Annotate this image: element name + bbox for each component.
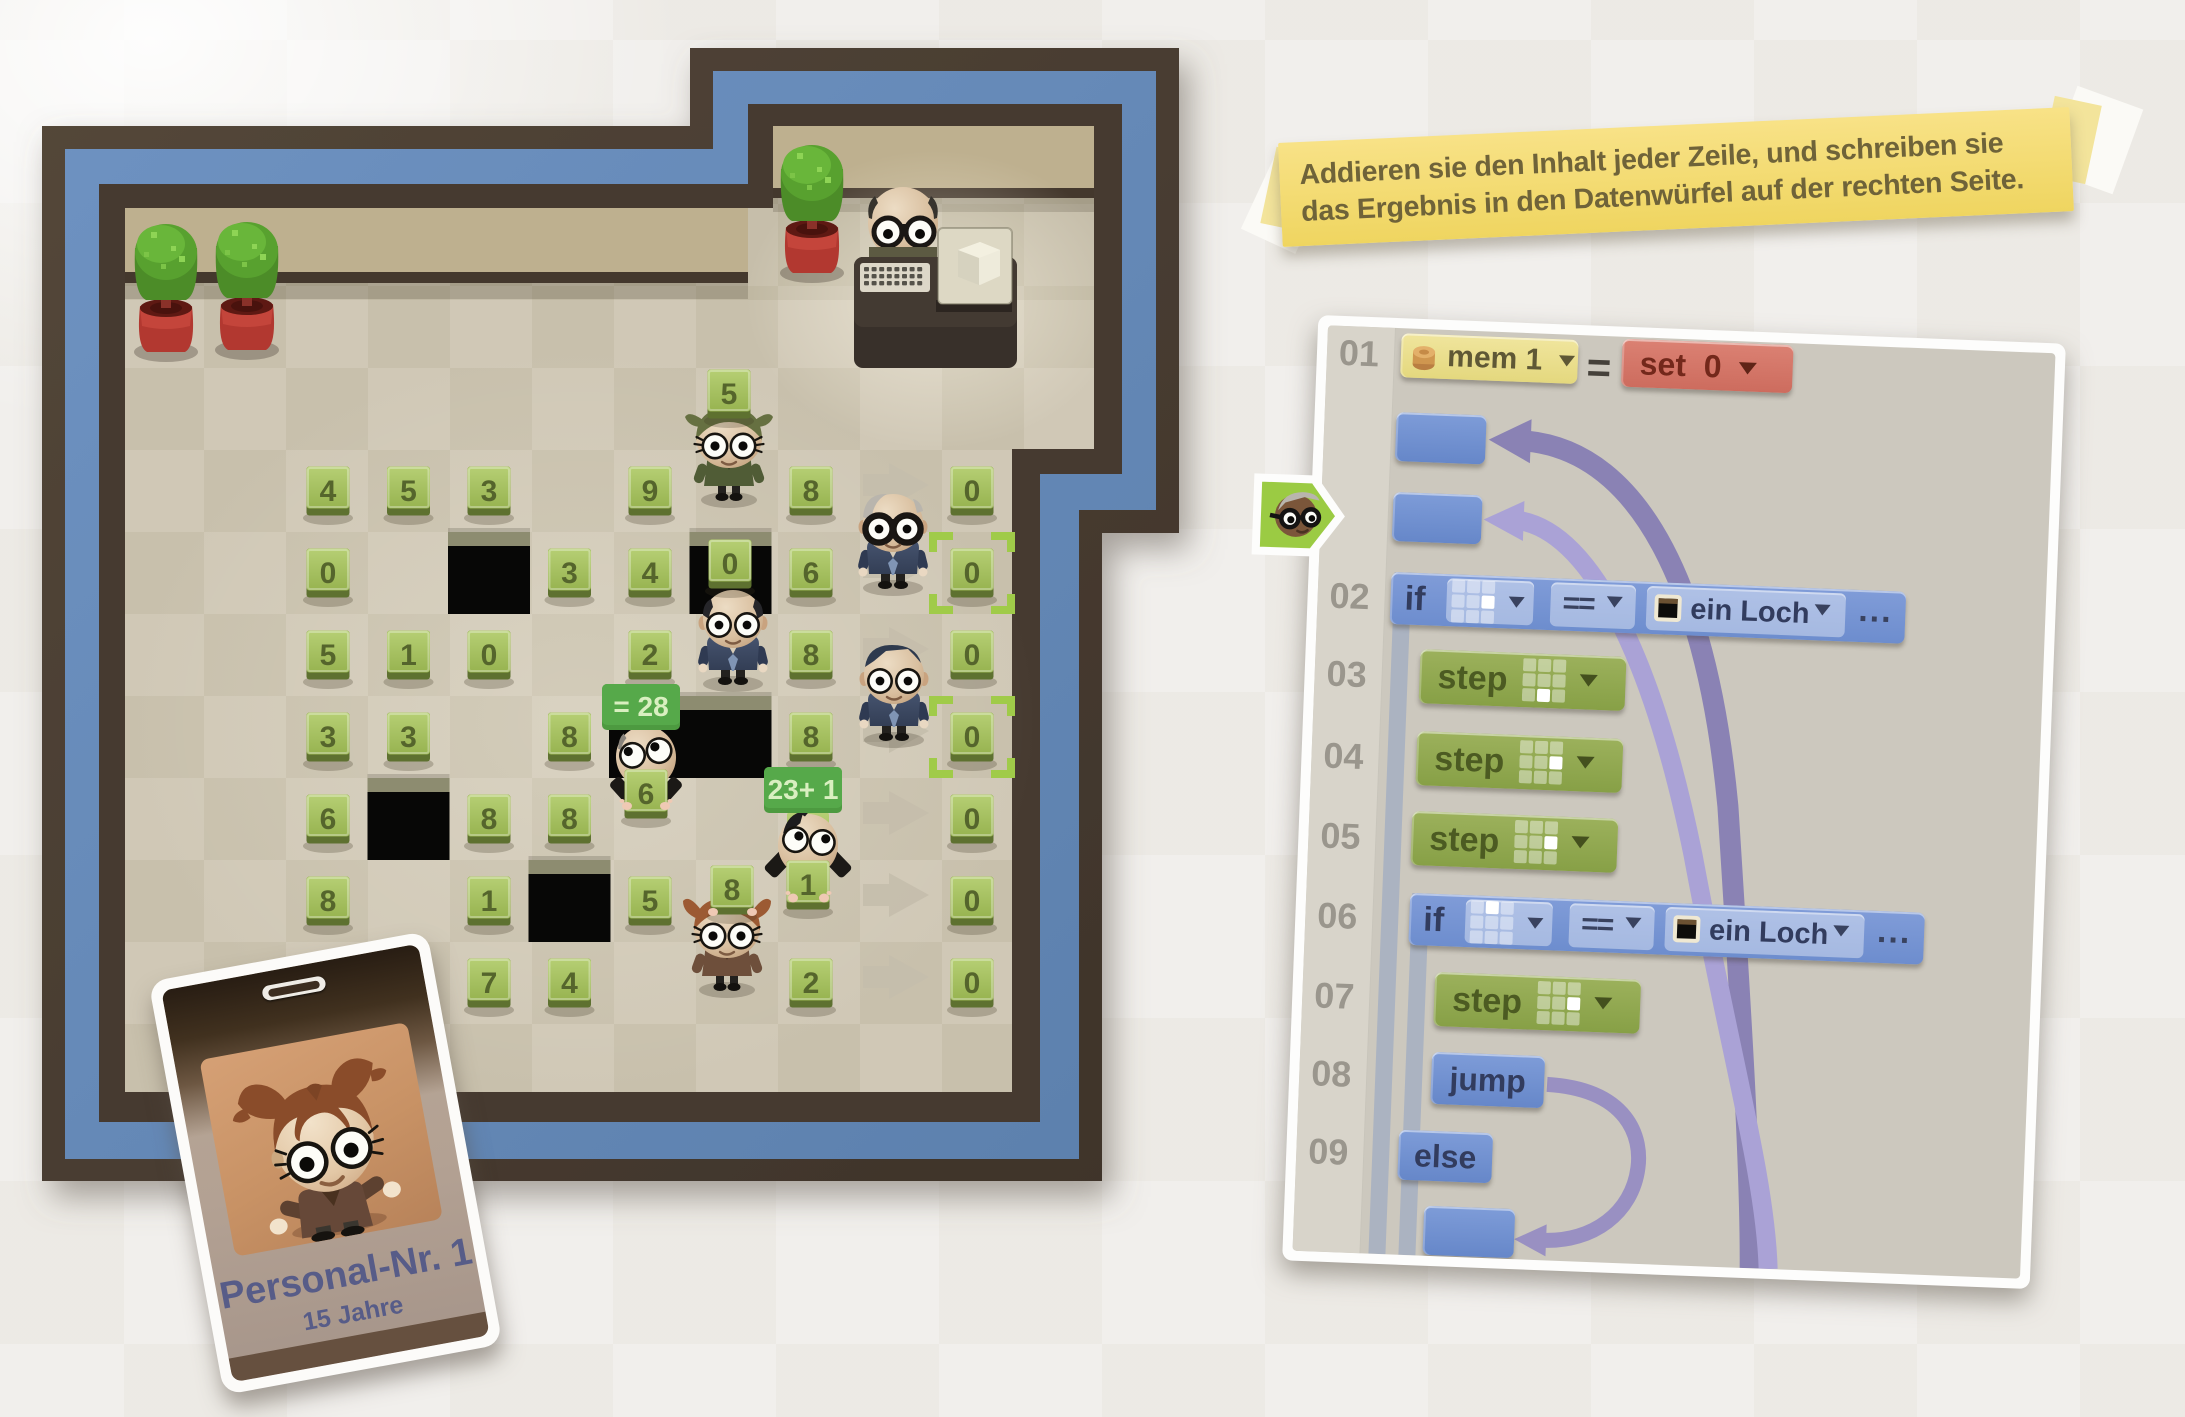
svg-text:0: 0 (964, 885, 981, 918)
svg-text:5: 5 (320, 639, 337, 672)
svg-text:0: 0 (964, 639, 981, 672)
svg-text:0: 0 (964, 721, 981, 754)
svg-text:2: 2 (803, 967, 820, 1000)
svg-text:0: 0 (964, 967, 981, 1000)
svg-text:7: 7 (481, 967, 498, 1000)
svg-text:6: 6 (638, 778, 655, 811)
svg-text:8: 8 (561, 803, 578, 836)
svg-text:3: 3 (561, 557, 578, 590)
svg-text:9: 9 (642, 475, 659, 508)
svg-text:3: 3 (400, 721, 417, 754)
svg-text:3: 3 (481, 475, 498, 508)
svg-text:1: 1 (400, 639, 417, 672)
svg-text:8: 8 (561, 721, 578, 754)
svg-text:8: 8 (481, 803, 498, 836)
svg-text:8: 8 (803, 475, 820, 508)
svg-text:0: 0 (964, 475, 981, 508)
svg-text:0: 0 (722, 548, 739, 581)
svg-text:0: 0 (964, 803, 981, 836)
svg-text:6: 6 (803, 557, 820, 590)
svg-text:4: 4 (320, 475, 337, 508)
svg-text:0: 0 (320, 557, 337, 590)
svg-text:0: 0 (481, 639, 498, 672)
svg-text:4: 4 (642, 557, 659, 590)
svg-text:8: 8 (803, 639, 820, 672)
svg-text:8: 8 (724, 874, 741, 907)
svg-text:8: 8 (320, 885, 337, 918)
svg-text:4: 4 (561, 967, 578, 1000)
svg-text:3: 3 (320, 721, 337, 754)
svg-text:1: 1 (800, 869, 817, 902)
svg-text:8: 8 (803, 721, 820, 754)
svg-text:5: 5 (400, 475, 417, 508)
svg-text:2: 2 (642, 639, 659, 672)
svg-text:6: 6 (320, 803, 337, 836)
svg-text:23+ 1: 23+ 1 (768, 774, 839, 805)
svg-text:5: 5 (642, 885, 659, 918)
svg-text:= 28: = 28 (613, 691, 668, 722)
svg-text:1: 1 (481, 885, 498, 918)
svg-text:5: 5 (721, 378, 738, 411)
svg-text:0: 0 (964, 557, 981, 590)
